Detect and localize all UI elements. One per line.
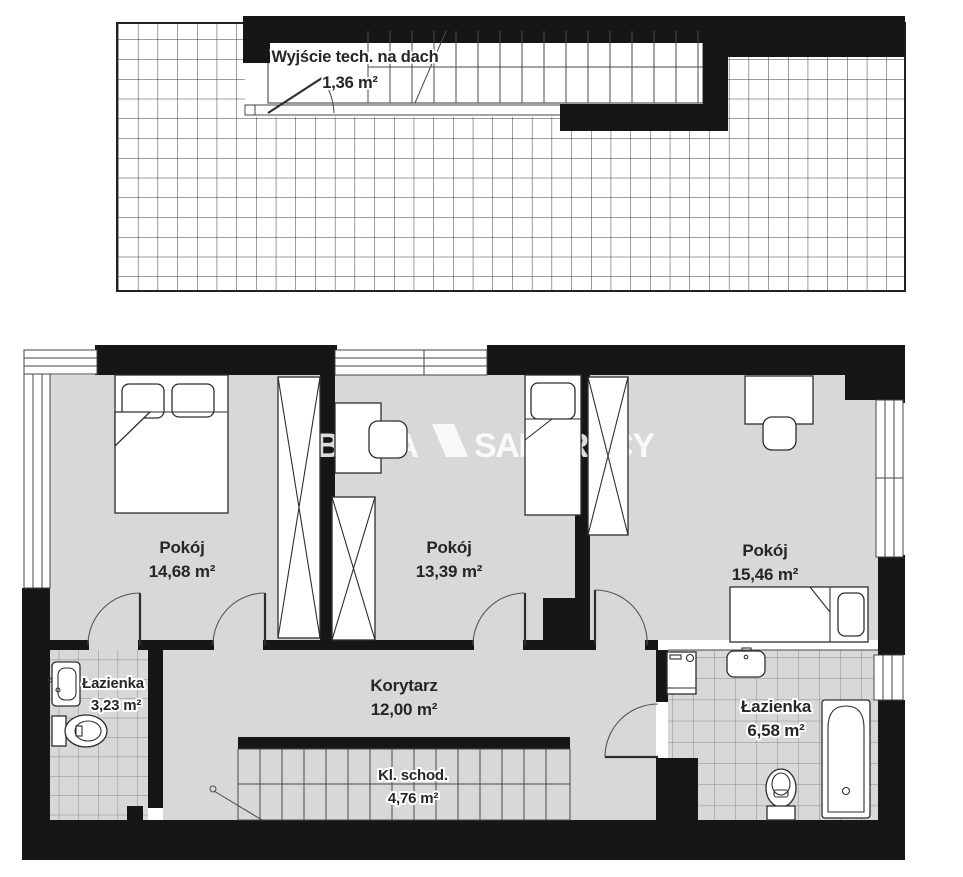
- wall-bottom: [22, 820, 905, 860]
- sink-right-bath: [727, 648, 765, 677]
- roof-wall-left-corner: [243, 16, 270, 63]
- bath-left-area: 3,23 m²: [91, 697, 141, 714]
- window-left-wall: [24, 352, 50, 588]
- room-right-label: Pokój: [742, 541, 787, 560]
- wall-right-1: [878, 345, 905, 403]
- window-mid-room-top: [335, 350, 487, 375]
- staircase-top-band: [238, 737, 570, 749]
- roof-section: Wyjście tech. na dach 1,36 m²: [117, 16, 905, 291]
- bath-right-label: Łazienka: [741, 697, 812, 716]
- room-right-area: 15,46 m²: [732, 565, 799, 584]
- wall-top-a: [320, 345, 337, 375]
- wardrobe-left-room: [278, 377, 320, 638]
- room-mid-area: 13,39 m²: [416, 562, 483, 581]
- chair-right-room: [763, 417, 796, 450]
- wall-bath-right-lower: [656, 758, 698, 820]
- wardrobe-mid-room: [332, 497, 375, 640]
- stairs-area: 4,76 m²: [388, 790, 438, 807]
- roof-wall-mid-horizontal: [560, 104, 728, 131]
- toilet-right-bath: [766, 769, 796, 820]
- window-right-room: [876, 400, 903, 557]
- corridor-label: Korytarz: [370, 676, 437, 695]
- room-left-area: 14,68 m²: [149, 562, 216, 581]
- bath-left-label: Łazienka: [82, 675, 145, 692]
- pillow-right-room: [838, 593, 864, 636]
- floor-plan-svg: Wyjście tech. na dach 1,36 m²: [0, 0, 963, 877]
- wall-top-right: [585, 345, 880, 375]
- roof-wall-top-right: [703, 16, 905, 57]
- room-left-label: Pokój: [159, 538, 204, 557]
- washing-machine: [667, 652, 696, 694]
- wall-top-left: [95, 345, 320, 375]
- roof-label: Wyjście tech. na dach: [272, 48, 439, 66]
- window-top-left-corner: [24, 350, 97, 374]
- roof-area: 1,36 m²: [322, 74, 378, 92]
- chair-mid-room: [369, 421, 407, 458]
- wall-right-2: [878, 555, 905, 655]
- corridor-area: 12,00 m²: [371, 700, 438, 719]
- wall-notch-top-right: [845, 375, 880, 400]
- wall-bath-left-right: [148, 650, 163, 808]
- wall-top-b: [487, 345, 585, 375]
- stairs-label: Kl. schod.: [378, 767, 448, 784]
- wall-bath-left-stub: [127, 806, 143, 820]
- wall-left-lower: [22, 588, 50, 860]
- wall-stub-mid-room: [543, 598, 575, 640]
- pillow-mid-room: [531, 383, 575, 419]
- bath-right-area: 6,58 m²: [747, 721, 805, 740]
- window-bath-right: [874, 655, 903, 700]
- sink-left-bath: [48, 662, 80, 706]
- toilet-left-bath: [52, 715, 107, 747]
- room-mid-label: Pokój: [426, 538, 471, 557]
- wall-bath-right-upper: [656, 650, 668, 702]
- floor-plan-page: Wyjście tech. na dach 1,36 m²: [0, 0, 963, 877]
- wardrobe-right-room: [588, 377, 628, 535]
- upper-floor-plan: BRACIA SADURSCY: [22, 345, 905, 860]
- bathtub: [822, 700, 870, 818]
